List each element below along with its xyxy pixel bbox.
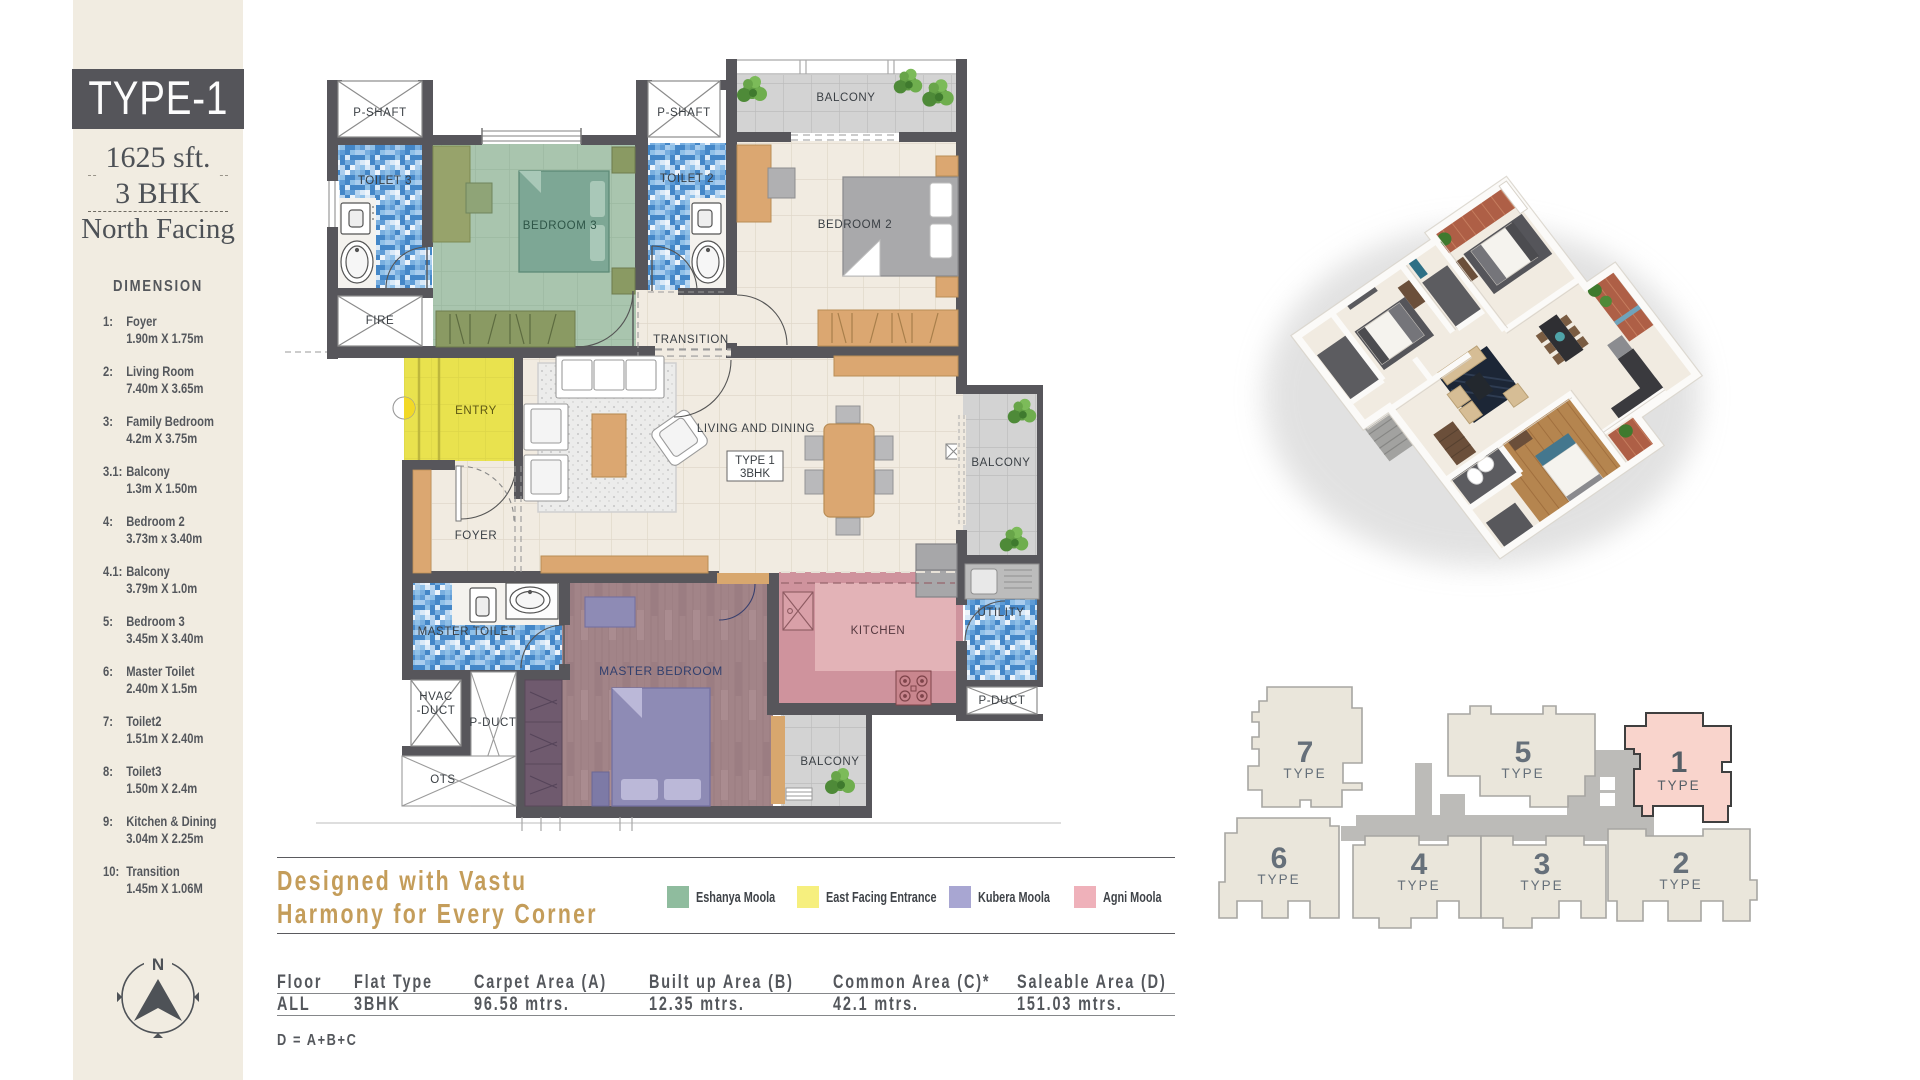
svg-text:BEDROOM 3: BEDROOM 3 (523, 220, 597, 232)
svg-text:2: 2 (1673, 847, 1690, 880)
svg-text:TYPE: TYPE (1257, 872, 1300, 887)
svg-text:P-DUCT: P-DUCT (469, 717, 516, 729)
svg-text:P-SHAFT: P-SHAFT (657, 107, 710, 119)
svg-text:6: 6 (1271, 842, 1288, 875)
svg-text:1: 1 (1671, 746, 1688, 779)
svg-text:BALCONY: BALCONY (816, 92, 875, 104)
svg-text:P-SHAFT: P-SHAFT (353, 107, 406, 119)
svg-text:TYPE: TYPE (1397, 878, 1440, 893)
svg-text:TOILET 2: TOILET 2 (660, 173, 714, 185)
svg-text:BEDROOM 2: BEDROOM 2 (818, 219, 892, 231)
svg-text:P-DUCT: P-DUCT (978, 695, 1025, 707)
svg-text:4: 4 (1411, 848, 1428, 881)
svg-text:7: 7 (1297, 736, 1314, 769)
svg-text:TYPE: TYPE (1657, 778, 1700, 793)
svg-text:HVAC: HVAC (419, 691, 453, 703)
svg-text:FOYER: FOYER (455, 530, 498, 542)
svg-text:TYPE: TYPE (1659, 877, 1702, 892)
svg-text:-DUCT: -DUCT (417, 705, 456, 717)
svg-text:FIRE: FIRE (366, 315, 395, 327)
svg-text:MASTER TOILET: MASTER TOILET (418, 626, 517, 638)
svg-text:BALCONY: BALCONY (800, 756, 859, 768)
svg-text:TYPE 1: TYPE 1 (735, 455, 775, 467)
svg-text:BALCONY: BALCONY (971, 457, 1030, 469)
svg-text:TRANSITION: TRANSITION (653, 334, 729, 346)
svg-text:TOILET 3: TOILET 3 (358, 175, 412, 187)
svg-text:KITCHEN: KITCHEN (851, 625, 906, 637)
svg-text:LIVING AND DINING: LIVING AND DINING (697, 423, 815, 435)
svg-text:ENTRY: ENTRY (455, 405, 497, 417)
svg-text:TYPE: TYPE (1283, 766, 1326, 781)
svg-text:OTS: OTS (430, 774, 455, 786)
svg-text:UTILITY: UTILITY (977, 607, 1024, 619)
svg-text:TYPE: TYPE (1501, 766, 1544, 781)
svg-text:5: 5 (1515, 736, 1532, 769)
svg-text:TYPE: TYPE (1520, 878, 1563, 893)
svg-text:MASTER BEDROOM: MASTER BEDROOM (599, 664, 723, 678)
svg-text:3BHK: 3BHK (740, 468, 770, 480)
svg-text:3: 3 (1534, 848, 1551, 881)
